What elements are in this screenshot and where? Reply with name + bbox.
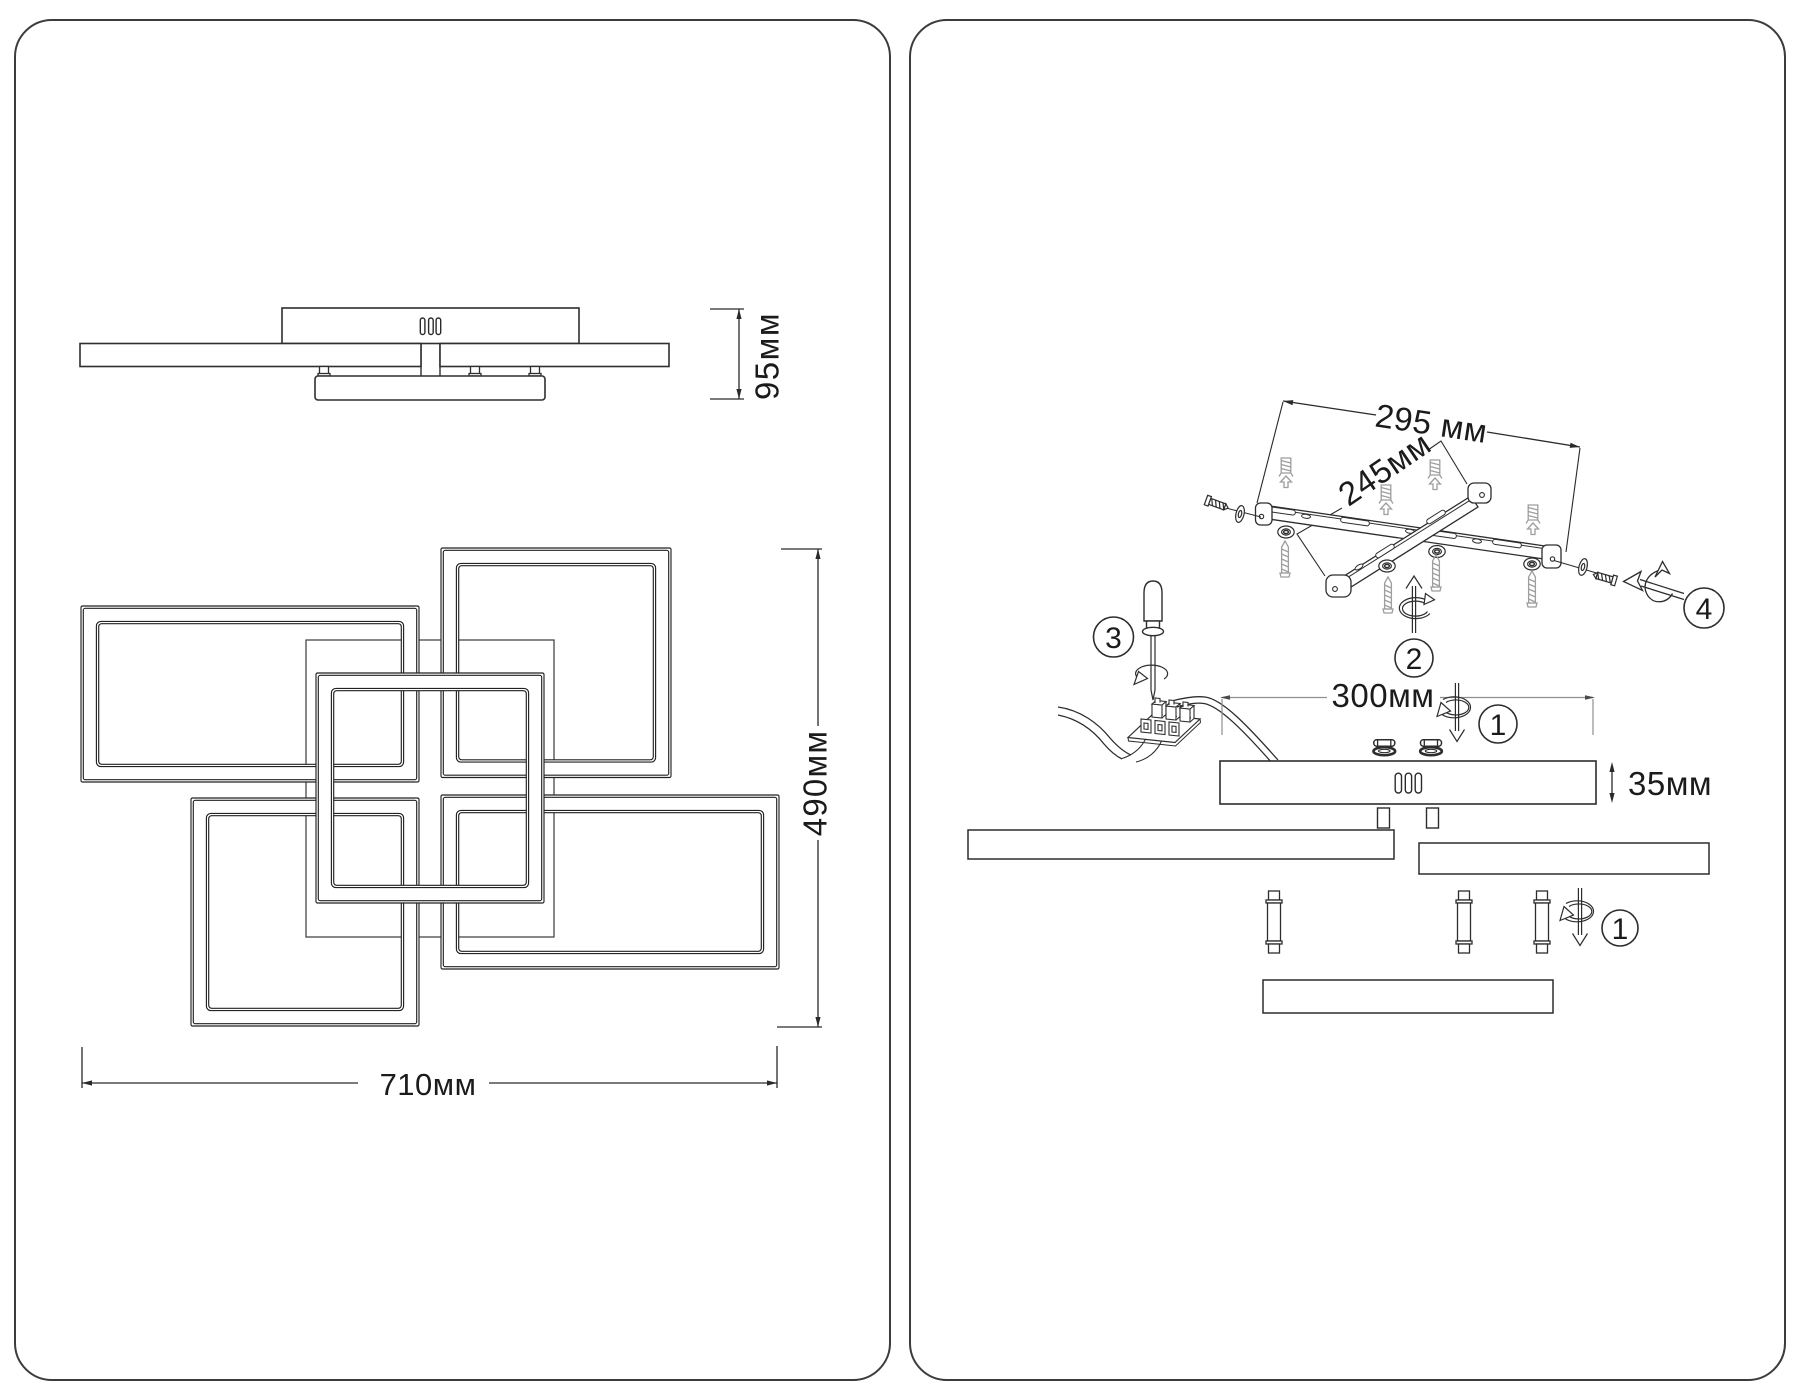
svg-text:3: 3 (1105, 622, 1122, 655)
svg-text:4: 4 (1696, 593, 1713, 626)
svg-text:95мм: 95мм (749, 312, 786, 400)
svg-text:300мм: 300мм (1332, 677, 1435, 714)
svg-text:1: 1 (1490, 709, 1507, 742)
svg-text:490мм: 490мм (797, 730, 834, 836)
svg-text:710мм: 710мм (380, 1067, 477, 1102)
svg-text:2: 2 (1406, 643, 1423, 676)
svg-text:1: 1 (1612, 913, 1629, 946)
svg-text:35мм: 35мм (1628, 765, 1712, 802)
